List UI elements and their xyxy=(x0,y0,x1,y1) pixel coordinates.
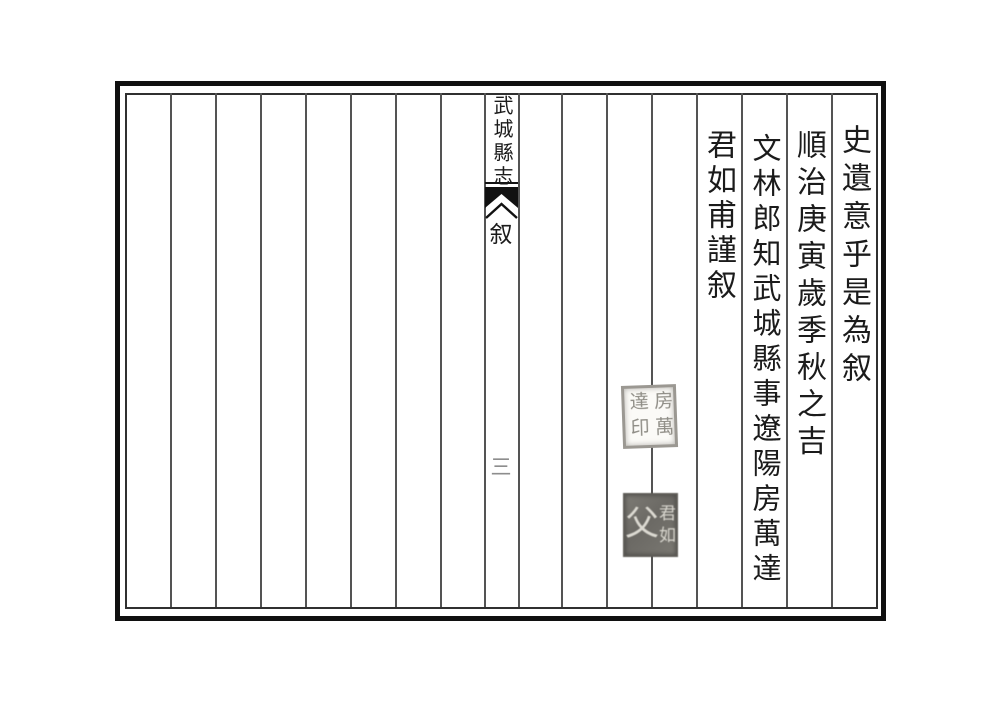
text-column-4: 君如甫謹叙 xyxy=(696,129,741,304)
column-rule xyxy=(606,93,608,607)
seal-dark-right-chars: 君 如 xyxy=(659,503,676,547)
text-column-2: 順治庚寅歲季秋之吉 xyxy=(786,129,831,462)
column-rule xyxy=(440,93,442,607)
column-rule xyxy=(260,93,262,607)
column-rule xyxy=(350,93,352,607)
seal-light-left-chars: 達印 xyxy=(624,391,650,444)
column-rule xyxy=(215,93,217,607)
column-rule xyxy=(561,93,563,607)
seal-light-right-chars: 房萬 xyxy=(649,390,675,443)
column-rule xyxy=(518,93,520,607)
seal-stamp-light: 房萬 達印 xyxy=(621,384,678,449)
column-rule xyxy=(170,93,172,607)
scanned-page: 史遺意乎是為叙 順治庚寅歲季秋之吉 文林郎知武城縣事遼陽房萬達 君如甫謹叙 武城… xyxy=(0,0,1000,706)
section-label: 叙 xyxy=(484,215,518,249)
text-column-1: 史遺意乎是為叙 xyxy=(831,124,876,390)
column-rule xyxy=(305,93,307,607)
seal-dark-left-char: 父 xyxy=(625,508,659,542)
text-column-3: 文林郎知武城縣事遼陽房萬達 xyxy=(741,133,786,588)
book-title: 武城縣志 xyxy=(484,95,518,189)
seal-dark-right-top-char: 君 xyxy=(659,503,676,525)
page-number: 三 xyxy=(484,451,518,481)
column-rule xyxy=(395,93,397,607)
fishtail-top-rule xyxy=(485,182,518,184)
seal-dark-right-bottom-char: 如 xyxy=(659,525,676,547)
seal-stamp-dark: 父 君 如 xyxy=(623,493,678,557)
